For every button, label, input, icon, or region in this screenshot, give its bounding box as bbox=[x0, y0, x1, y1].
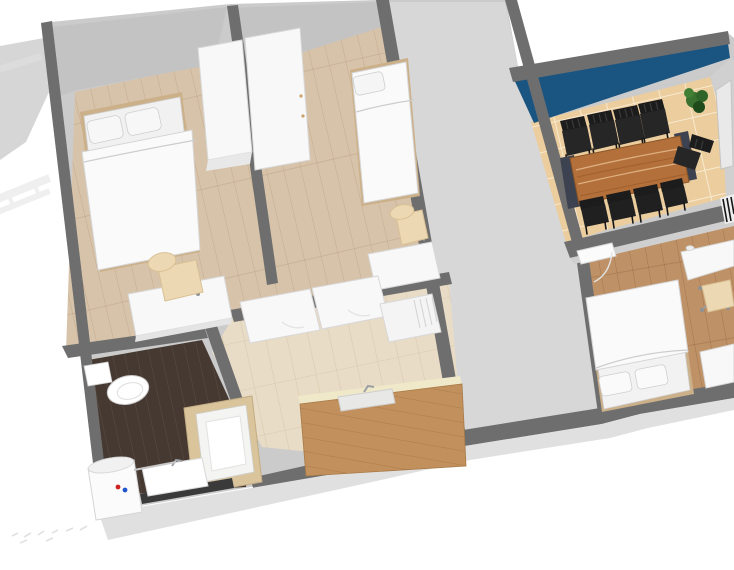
toilet-tank bbox=[84, 362, 112, 386]
wardrobe-knob bbox=[301, 114, 304, 117]
dresser-right-bedroom[interactable] bbox=[700, 344, 734, 388]
bed-duvet bbox=[82, 130, 200, 270]
water-heater[interactable] bbox=[87, 454, 142, 520]
wardrobe-knob bbox=[299, 94, 302, 97]
shower-basin bbox=[206, 416, 246, 471]
floorplan-canvas[interactable] bbox=[0, 0, 734, 570]
wardrobe-top bbox=[245, 28, 310, 170]
bed-single-middle[interactable] bbox=[350, 58, 420, 206]
wardrobe-top bbox=[198, 40, 252, 160]
dresser-top bbox=[700, 344, 734, 388]
wardrobe-middle-bedroom[interactable] bbox=[245, 28, 310, 170]
desk-lamp-base bbox=[686, 246, 694, 251]
chair-seat bbox=[702, 280, 734, 312]
floorplan-3d-viewport[interactable] bbox=[0, 0, 734, 570]
bed-double-left[interactable] bbox=[80, 92, 200, 272]
cold-valve bbox=[123, 488, 128, 493]
hot-valve bbox=[116, 485, 121, 490]
bed-double-right[interactable] bbox=[586, 280, 694, 412]
